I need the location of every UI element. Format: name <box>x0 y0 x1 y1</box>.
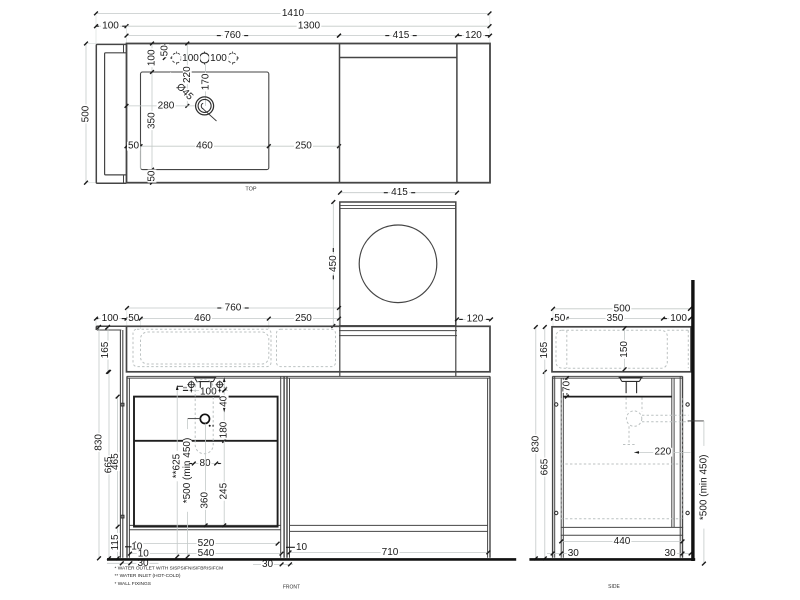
svg-text:440: 440 <box>614 536 631 547</box>
svg-text:465: 465 <box>110 453 121 470</box>
svg-text:165: 165 <box>539 341 550 358</box>
svg-text:50: 50 <box>128 313 140 324</box>
svg-text:115: 115 <box>110 534 121 550</box>
svg-text:450: 450 <box>328 255 339 272</box>
svg-text:250: 250 <box>295 313 312 324</box>
svg-text:120: 120 <box>465 30 482 41</box>
svg-text:760: 760 <box>225 303 242 314</box>
svg-text:250: 250 <box>295 141 312 152</box>
svg-text:120: 120 <box>467 314 484 325</box>
svg-text:280: 280 <box>158 100 175 111</box>
svg-text:360: 360 <box>199 492 210 509</box>
svg-text:415: 415 <box>393 30 410 41</box>
svg-text:*500 (min 450): *500 (min 450) <box>182 438 193 504</box>
svg-text:415: 415 <box>391 187 408 198</box>
svg-text:100: 100 <box>210 53 227 64</box>
svg-text:830: 830 <box>530 435 541 452</box>
svg-text:500: 500 <box>81 105 92 122</box>
svg-text:460: 460 <box>194 313 211 324</box>
svg-text:50: 50 <box>147 170 158 182</box>
svg-text:*500 (min 450): *500 (min 450) <box>698 455 709 521</box>
svg-text:40: 40 <box>219 395 230 407</box>
svg-text:* WATER OUTLET WITH SISPSIFNIS: * WATER OUTLET WITH SISPSIFNISIFBRISIFCM <box>115 566 224 572</box>
svg-text:460: 460 <box>196 141 213 152</box>
svg-text:30: 30 <box>568 548 580 559</box>
svg-text:50: 50 <box>128 141 140 152</box>
svg-text:350: 350 <box>607 313 624 324</box>
svg-text:100: 100 <box>102 21 119 32</box>
svg-text:50: 50 <box>554 313 566 324</box>
svg-text:100: 100 <box>182 53 199 64</box>
svg-text:760: 760 <box>224 30 241 41</box>
svg-text:220: 220 <box>654 447 671 458</box>
svg-text:FRONT: FRONT <box>283 585 300 591</box>
svg-text:10: 10 <box>296 542 308 553</box>
svg-text:540: 540 <box>198 548 215 559</box>
svg-text:**625: **625 <box>171 453 182 478</box>
svg-text:** WATER INLET (HOT-COLD): ** WATER INLET (HOT-COLD) <box>115 573 181 579</box>
svg-text:830: 830 <box>94 434 105 451</box>
svg-text:TOP: TOP <box>245 187 257 193</box>
svg-text:100: 100 <box>102 313 119 324</box>
svg-text:30: 30 <box>664 548 676 559</box>
svg-text:50: 50 <box>159 45 170 57</box>
svg-text:665: 665 <box>539 458 550 475</box>
svg-text:180: 180 <box>219 421 230 438</box>
svg-text:150: 150 <box>619 341 630 358</box>
svg-text:1300: 1300 <box>298 21 321 32</box>
svg-text:100: 100 <box>147 49 158 66</box>
svg-text:100: 100 <box>670 313 687 324</box>
svg-text:SIDE: SIDE <box>608 584 620 590</box>
svg-text:**: ** <box>183 387 187 393</box>
svg-text:350: 350 <box>147 112 158 129</box>
svg-text:70: 70 <box>561 380 572 392</box>
svg-text:170: 170 <box>200 73 211 90</box>
svg-text:1410: 1410 <box>282 8 305 19</box>
svg-text:220: 220 <box>182 66 193 83</box>
svg-text:245: 245 <box>219 482 230 499</box>
svg-text:165: 165 <box>100 341 111 358</box>
svg-text:710: 710 <box>382 547 399 558</box>
svg-text:* WALL FIXINGS: * WALL FIXINGS <box>115 581 151 587</box>
